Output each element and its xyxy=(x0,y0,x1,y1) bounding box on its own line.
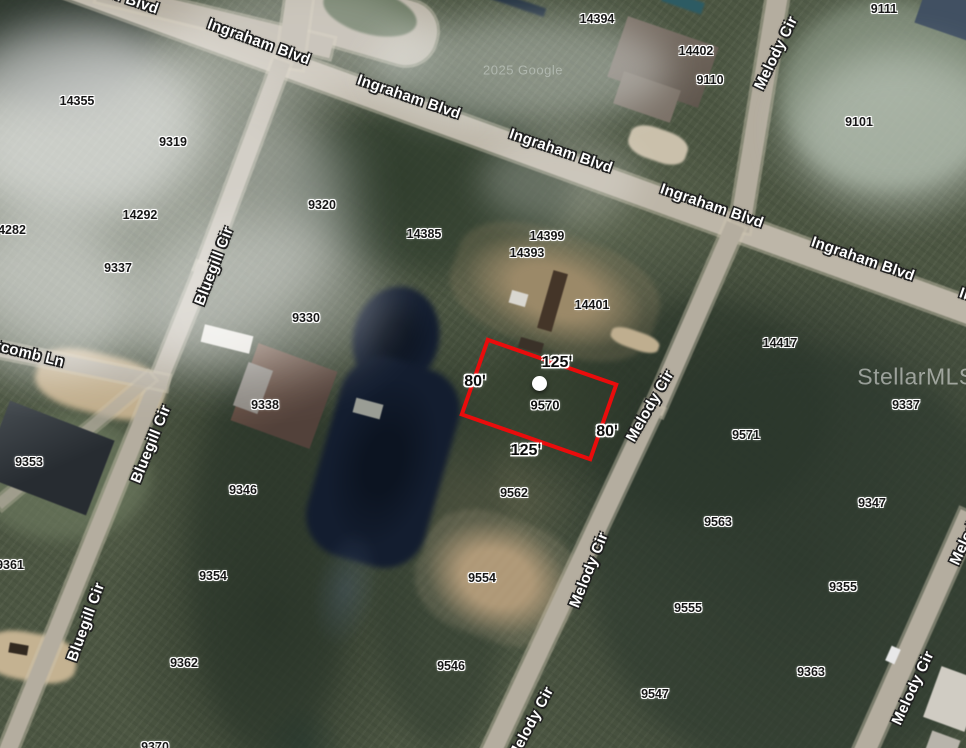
subject-parcel-number: 9570 xyxy=(531,398,560,413)
subject-parcel-marker xyxy=(532,376,547,391)
mls-watermark: StellarMLS xyxy=(857,364,966,391)
satellite-map: 9570 Ingraham BlvdIngraham BlvdIngraham … xyxy=(0,0,966,748)
imagery-credit-watermark: 2025 Google xyxy=(483,63,563,78)
